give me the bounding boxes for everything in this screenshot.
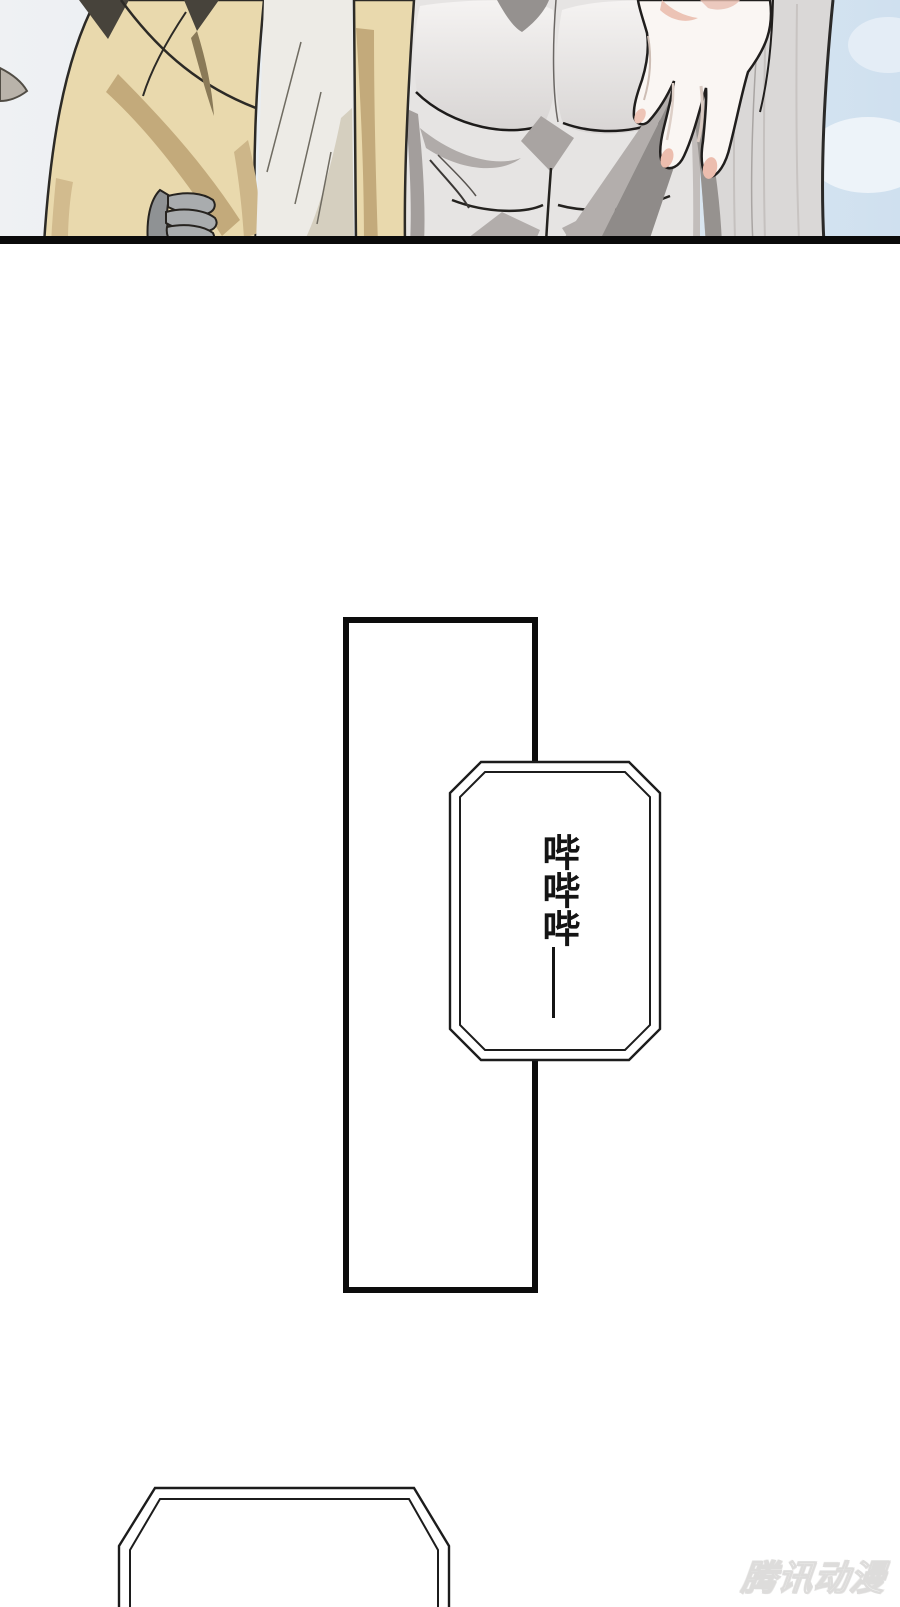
beep-bubble-text: 哔哔哔 — [536, 833, 576, 947]
gray-gloved-fingers — [148, 190, 217, 244]
top-comic-panel — [0, 0, 900, 244]
comic-page: 哔哔哔 腾讯动漫 — [0, 0, 900, 1607]
beep-bubble-dash-stroke — [552, 947, 555, 1018]
bottom-speech-bubble — [117, 1486, 451, 1607]
white-robe — [256, 0, 354, 244]
panel-bottom-border — [0, 236, 900, 244]
tencent-comics-watermark: 腾讯动漫 — [739, 1550, 888, 1601]
tan-sleeve — [354, 0, 414, 244]
